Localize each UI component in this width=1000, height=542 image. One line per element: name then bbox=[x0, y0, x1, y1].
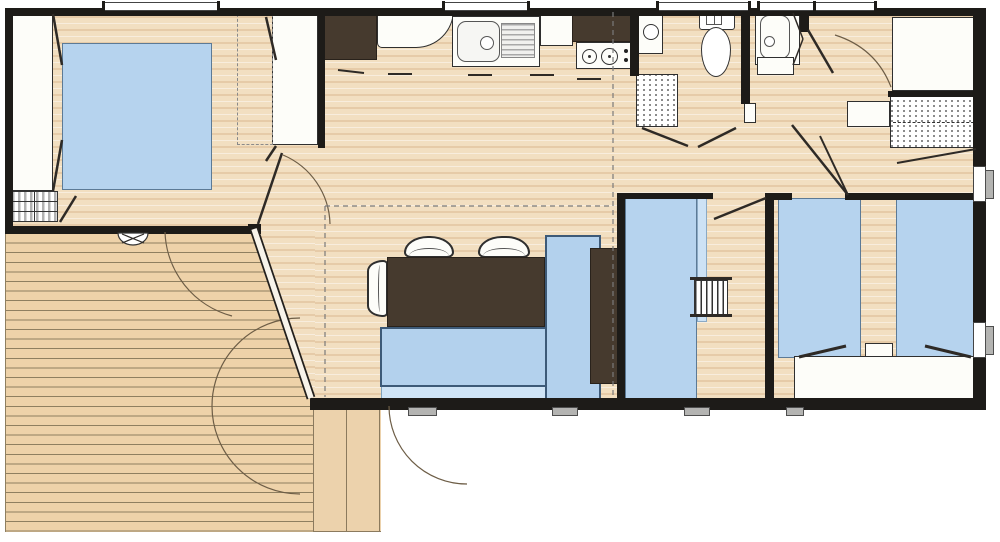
kitchen-sink-sink-drain bbox=[501, 23, 535, 58]
wall-bay-cap bbox=[248, 224, 261, 234]
wardrobe-master-left bbox=[11, 13, 53, 191]
hob-hob-b2 bbox=[601, 48, 618, 65]
toilet bbox=[698, 11, 736, 77]
wall-mid-east bbox=[765, 193, 774, 408]
wall-wc-west bbox=[630, 8, 639, 76]
hob-hob-k2 bbox=[624, 58, 628, 62]
closet-corner bbox=[892, 17, 978, 91]
door-pivot-panel bbox=[744, 103, 756, 123]
washbasin-unit bbox=[757, 57, 794, 75]
toilet-wc-bowl bbox=[701, 27, 731, 77]
shelf-unit-small bbox=[847, 101, 890, 127]
wall-shower-east-stub bbox=[800, 8, 809, 32]
drawer-unit-master bbox=[11, 191, 58, 222]
sofa-bench bbox=[380, 327, 547, 387]
shelving-hatched bbox=[890, 96, 982, 148]
water-heater-heater-c bbox=[643, 24, 659, 40]
dining-chair-3 bbox=[367, 260, 388, 317]
tv-cabinet bbox=[590, 248, 618, 384]
hob-hob-k1 bbox=[624, 49, 628, 53]
dining-chair-2 bbox=[478, 236, 530, 258]
wall-master-south bbox=[5, 226, 260, 234]
kitchen-sink bbox=[452, 16, 540, 67]
bed-single-right-2 bbox=[896, 198, 980, 358]
wall-rightroom-north-b bbox=[845, 193, 985, 200]
wall-closet-south bbox=[888, 91, 984, 97]
fridge-unit bbox=[322, 10, 377, 60]
window-glazing-east-2 bbox=[985, 326, 994, 355]
ladder-rail-bottom bbox=[690, 314, 732, 317]
window-sill-right-room bbox=[786, 407, 804, 416]
window-wc bbox=[658, 2, 749, 11]
wardrobe-master-right bbox=[272, 14, 318, 145]
wall-master-kitchen bbox=[318, 8, 325, 148]
cupboard-hatched bbox=[636, 74, 678, 127]
terrace-deck bbox=[5, 233, 315, 532]
bed-single-right-1 bbox=[778, 198, 861, 358]
counter-mid bbox=[540, 12, 573, 46]
door-swing-entry bbox=[389, 406, 467, 484]
bunk-ladder bbox=[694, 280, 728, 316]
window-bath-mullion bbox=[813, 1, 816, 13]
water-heater bbox=[638, 10, 663, 54]
entry-step-1 bbox=[408, 407, 437, 416]
window-sill-mid-room bbox=[684, 407, 710, 416]
wall-midroom-north-a bbox=[617, 193, 713, 199]
window-bath bbox=[759, 2, 875, 11]
window-master bbox=[104, 2, 218, 11]
window-kitchen bbox=[444, 2, 528, 11]
entry-step-2 bbox=[552, 407, 578, 416]
side-deck-strip bbox=[313, 400, 381, 532]
shower-shower-drain bbox=[764, 36, 775, 47]
hob-hob-b1 bbox=[582, 49, 597, 64]
dining-table bbox=[387, 257, 545, 327]
bed-master-double bbox=[62, 43, 212, 190]
wall-wc-east bbox=[741, 8, 750, 104]
hob bbox=[576, 42, 634, 69]
bed-single-middle bbox=[625, 198, 697, 400]
wall-rightroom-north-a bbox=[774, 193, 792, 200]
window-glazing-east-1 bbox=[985, 170, 994, 199]
mobile-home-floor-plan bbox=[0, 0, 1000, 542]
closet-zone-dashed bbox=[237, 14, 273, 145]
wall-living-east bbox=[617, 193, 625, 408]
wall-left bbox=[5, 8, 13, 234]
kitchen-sink-sink-tap bbox=[480, 36, 494, 50]
storage-chest bbox=[794, 356, 974, 400]
